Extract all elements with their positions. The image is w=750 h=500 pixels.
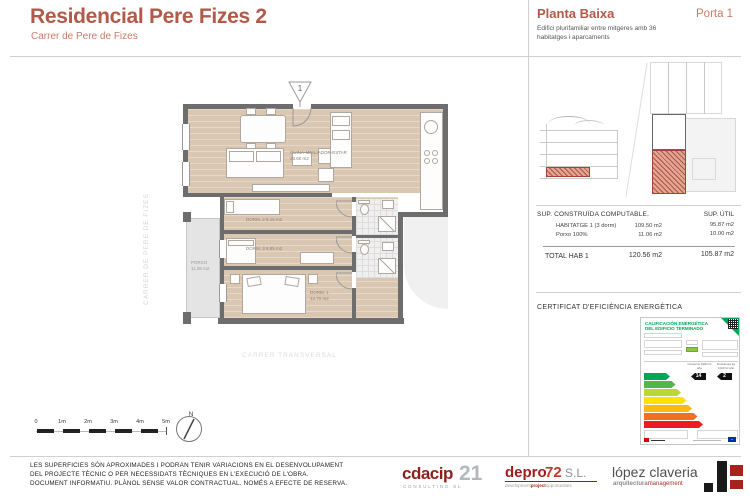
emisiones-column-header: Emisiones kg CO2/m² año <box>714 363 738 370</box>
porch-name: PORXO <box>191 260 209 266</box>
energy-arrow-A: A <box>644 373 670 380</box>
stove-burner <box>432 158 438 164</box>
building-description-line1: Edifici plurifamiliar entre mitgeres amb… <box>537 25 656 32</box>
disclaimer-line: DOCUMENT INFORMATIU. PLÀNOL SENSE VALOR … <box>30 479 347 488</box>
lopez-claveria-mark <box>703 459 743 495</box>
site-inner-line <box>686 62 687 114</box>
generalitat-logo-text <box>651 440 665 442</box>
dorm3-area: 8.85 m2 <box>266 246 282 251</box>
wall-bedrooms-hall-d <box>352 288 356 320</box>
useful-column-header: SUP. ÚTIL <box>690 211 734 218</box>
energy-arrow-B: B <box>644 381 676 388</box>
energy-arrow-D: D <box>644 397 687 404</box>
certificate-field <box>686 347 698 352</box>
table-total-divider <box>543 246 735 247</box>
wall-step <box>398 212 448 217</box>
porch-wall-block-bottom <box>183 312 191 324</box>
site-plan <box>622 58 740 200</box>
street-label-left: CARRER DE PERE DE FIZES <box>143 175 150 305</box>
kitchen-sink <box>424 120 438 134</box>
lopez-logo-sub: arquitecturamanagement <box>613 481 683 487</box>
total-built: 120.56 m2 <box>606 252 662 259</box>
table-cell-built: 11.06 m2 <box>610 232 662 238</box>
energy-rating-row-B: B <box>644 381 703 389</box>
certificate-footer-field <box>644 430 688 439</box>
cdacip-logo-number: 21 <box>459 462 482 486</box>
section-diagram <box>540 112 618 190</box>
site-block <box>692 158 716 180</box>
site-block <box>684 118 736 192</box>
page-subtitle: Carrer de Pere de Fizes <box>31 31 138 42</box>
north-arrow: N <box>172 408 206 444</box>
table-cell-built: 109.50 m2 <box>610 223 662 229</box>
site-unit-highlight <box>652 150 686 194</box>
depro-logo-suffix: S.L. <box>565 466 586 480</box>
window-left-1 <box>182 124 190 150</box>
page-title: Residencial Pere Fizes 2 <box>30 5 267 29</box>
section-floor-line <box>540 142 618 143</box>
street-label-bottom: CARRER TRANSVERSAL <box>242 352 337 359</box>
sofa-cushion <box>256 151 281 162</box>
kitchen-appliance <box>332 130 350 140</box>
cdacip-logo-sub: CONSULTING SL <box>403 484 462 489</box>
stove-burner <box>424 158 430 164</box>
disclaimer: LES SUPERFICIES SÓN APROXIMADES I PODRAN… <box>30 461 347 488</box>
energy-arrow-F: F <box>644 413 698 420</box>
dorm1-area: 12.70 m2 <box>310 296 329 302</box>
header-divider <box>10 56 741 57</box>
energy-rating-row-D: D <box>644 397 703 405</box>
generalitat-logo <box>644 438 649 442</box>
living-room-name: CUINA-MENJADOR-ESTAR <box>290 150 347 156</box>
scale-tick-label: 2m <box>84 419 92 425</box>
energy-arrow-E: E <box>644 405 692 412</box>
depro-sub-opportunities: opportunities <box>546 483 572 488</box>
wall-living-bedrooms <box>188 193 332 197</box>
dorm1-door-arc <box>336 272 353 290</box>
total-useful: 105.87 m2 <box>680 251 734 258</box>
section-highlight-unit <box>546 167 590 177</box>
scale-tick-label: 1m <box>58 419 66 425</box>
disclaimer-line: LES SUPERFICIES SÓN APROXIMADES I PODRAN… <box>30 461 347 470</box>
energy-arrow-C: C <box>644 389 681 396</box>
eu-flag-icon <box>728 437 736 442</box>
energy-rating-row-C: C <box>644 389 703 397</box>
depro-logo-number: 72 <box>545 464 562 481</box>
site-inner-line <box>704 62 705 114</box>
built-column-header: SUP. CONSTRUÏDA COMPUTABLE. <box>537 211 649 218</box>
dorm3-name: DORM. 3 <box>246 246 265 251</box>
dorm3-label: DORM. 3 8.85 m2 <box>246 246 282 252</box>
emisiones-value-badge: 2 <box>717 373 732 380</box>
porch-wall-block-top <box>183 212 191 222</box>
scale-tick-label: 4m <box>136 419 144 425</box>
energy-rating-row-F: F <box>644 413 703 421</box>
lopez-sub-arquitectura: arquitectura <box>613 481 648 487</box>
certificate-field <box>702 352 738 357</box>
section-wall-line <box>617 130 618 178</box>
certificate-field <box>644 333 682 338</box>
depro-sub-development: development <box>505 483 531 488</box>
energy-arrow-G: G <box>644 421 703 428</box>
sofa-cushion <box>229 151 254 162</box>
energy-scale: ABCDEFG <box>644 373 703 429</box>
lopez-logo-name: lópez claveria <box>612 464 698 480</box>
total-label: TOTAL HAB 1 <box>545 253 589 260</box>
nightstand <box>308 274 318 284</box>
sink-bath1 <box>382 200 394 209</box>
table-row: Porxo 100% <box>556 232 588 238</box>
section-floor-line <box>540 154 618 155</box>
table-cell-useful: 95.87 m2 <box>684 222 734 228</box>
entrance-marker-number: 1 <box>298 84 303 93</box>
entrance-door-arc <box>292 108 314 130</box>
plan-sheet: Residencial Pere Fizes 2 Carrer de Pere … <box>0 0 750 500</box>
stove-burner <box>424 150 430 156</box>
scale-segment <box>89 429 106 433</box>
scale-tick-label: 3m <box>110 419 118 425</box>
plan-name: Planta Baixa <box>537 6 614 21</box>
living-room-area: 33.60 m2 <box>290 156 347 162</box>
certificate-field <box>644 340 682 348</box>
certificate-field <box>702 340 738 350</box>
shower-bath2 <box>378 258 396 274</box>
scale-segment <box>141 429 158 433</box>
dorm2-label: DORM. 2 9.15 m2 <box>246 217 282 223</box>
cdacip-logo-name: cdacip <box>402 464 453 484</box>
cdacip-logo: cdacip 21 CONSULTING SL <box>402 461 498 495</box>
panel-divider <box>528 0 529 457</box>
table-row: HABITATGE 1 (3 dorm) <box>556 223 616 229</box>
disclaimer-line: DEL PROJECTE TÈCNIC O PER NECESSIDATS TÈ… <box>30 470 347 479</box>
certificate-footer-textline <box>693 440 721 442</box>
certificate-title-line2: DEL EDIFICIO TERMINADO <box>645 326 703 331</box>
mark-red-square <box>730 465 743 476</box>
section-floor-line <box>540 178 618 179</box>
site-unit-outline <box>652 114 686 150</box>
north-label: N <box>189 411 194 418</box>
scale-segment <box>115 429 132 433</box>
wall-dorm3-dorm1 <box>224 266 352 270</box>
dorm2-area: 9.15 m2 <box>266 217 282 222</box>
dining-chair <box>266 108 276 115</box>
depro-logo-sub: developmentprojectopportunities <box>505 483 572 488</box>
dorm2-name: DORM. 2 <box>246 217 265 222</box>
shower-bath1 <box>378 216 396 232</box>
wall-bedrooms-hall-b <box>352 216 356 236</box>
dorm3-door-arc <box>336 236 353 254</box>
mark-black-bar <box>717 461 727 492</box>
energy-rating-row-E: E <box>644 405 703 413</box>
pillow-dorm2 <box>226 201 234 213</box>
dining-table <box>240 115 286 143</box>
site-inner-line <box>668 62 669 114</box>
window-left-2 <box>182 162 190 186</box>
certificate-divider <box>644 361 738 362</box>
lopez-claveria-logo: lópez claveria arquitecturamanagement <box>612 463 700 493</box>
toilet-tank-bath1 <box>358 200 370 204</box>
wall-left-b <box>183 150 188 162</box>
porch-label: PORXO 11.06 m2 <box>191 260 209 271</box>
scale-segment <box>63 429 80 433</box>
energy-section-title: CERTIFICAT D'EFICIÈNCIA ENERGÈTICA <box>537 304 682 311</box>
scale-tick-label: 0 <box>34 419 37 425</box>
depro-sub-project: project <box>531 483 546 488</box>
tv-bench <box>252 184 330 192</box>
table-top-divider <box>536 205 741 206</box>
toilet-bath2 <box>360 244 369 255</box>
desk-dorm3 <box>300 252 334 264</box>
qr-code-icon <box>728 319 738 329</box>
dorm1-name: DORM. 1 <box>310 290 329 296</box>
toilet-tank-bath2 <box>358 240 370 244</box>
scale-bar: 0 1m 2m 3m 4m 5m <box>36 419 170 437</box>
scale-end-tick <box>166 427 167 435</box>
dorm1-label: DORM. 1 12.70 m2 <box>310 290 329 301</box>
wall-dorm2-dorm3 <box>224 230 352 234</box>
dorm2-door-arc <box>336 200 353 218</box>
wall-bottom <box>218 318 404 324</box>
wall-top-left <box>183 104 293 109</box>
table-cell-useful: 10.00 m2 <box>684 231 734 237</box>
energy-certificate-card: CALIFICACIÓN ENERGÉTICA DEL EDIFICIO TER… <box>640 317 740 445</box>
wall-top-right <box>311 104 448 109</box>
scale-segment <box>37 429 54 433</box>
section-roof-profile <box>574 120 604 132</box>
porch-area: 11.06 m2 <box>191 266 209 272</box>
sink-bath2 <box>382 242 394 251</box>
entrance-marker: 1 <box>287 80 313 107</box>
kitchen-appliance <box>332 116 350 126</box>
footer-divider <box>10 456 741 457</box>
nightstand <box>230 274 240 284</box>
exterior-band <box>404 217 448 309</box>
scale-tick-label: 5m <box>162 419 170 425</box>
armchair <box>318 168 334 182</box>
wall-bedrooms-hall-c <box>352 252 356 272</box>
energy-section-divider <box>536 292 741 293</box>
mark-black-square <box>704 483 713 492</box>
window-porch-2 <box>219 284 227 302</box>
wall-left-a <box>183 104 188 124</box>
consumo-column-header: Consumo kWh/m² año <box>687 363 712 370</box>
depro-logo-underline <box>505 481 597 482</box>
site-road-line <box>625 63 647 197</box>
wall-porch-c <box>220 302 224 320</box>
stove-burner <box>432 150 438 156</box>
certificate-field <box>644 350 682 355</box>
wall-bathroom-divider <box>356 235 398 238</box>
lopez-sub-management: management <box>648 481 683 487</box>
wall-right-kitchen <box>443 104 448 217</box>
energy-rating-row-G: G <box>644 421 703 429</box>
depro-logo-name: depro <box>505 464 547 481</box>
dining-chair <box>246 108 256 115</box>
toilet-bath1 <box>360 204 369 215</box>
living-room-label: CUINA-MENJADOR-ESTAR 33.60 m2 <box>290 150 347 161</box>
certificate-field <box>686 340 698 345</box>
wall-right-lower <box>398 212 403 322</box>
mark-red-bar <box>730 480 743 489</box>
depro-logo: depro 72 S.L. developmentprojectopportun… <box>505 462 605 494</box>
wall-porch-b <box>220 258 224 284</box>
door-label: Porta 1 <box>696 8 733 20</box>
building-description-line2: habitatges i aparcaments <box>537 34 610 41</box>
